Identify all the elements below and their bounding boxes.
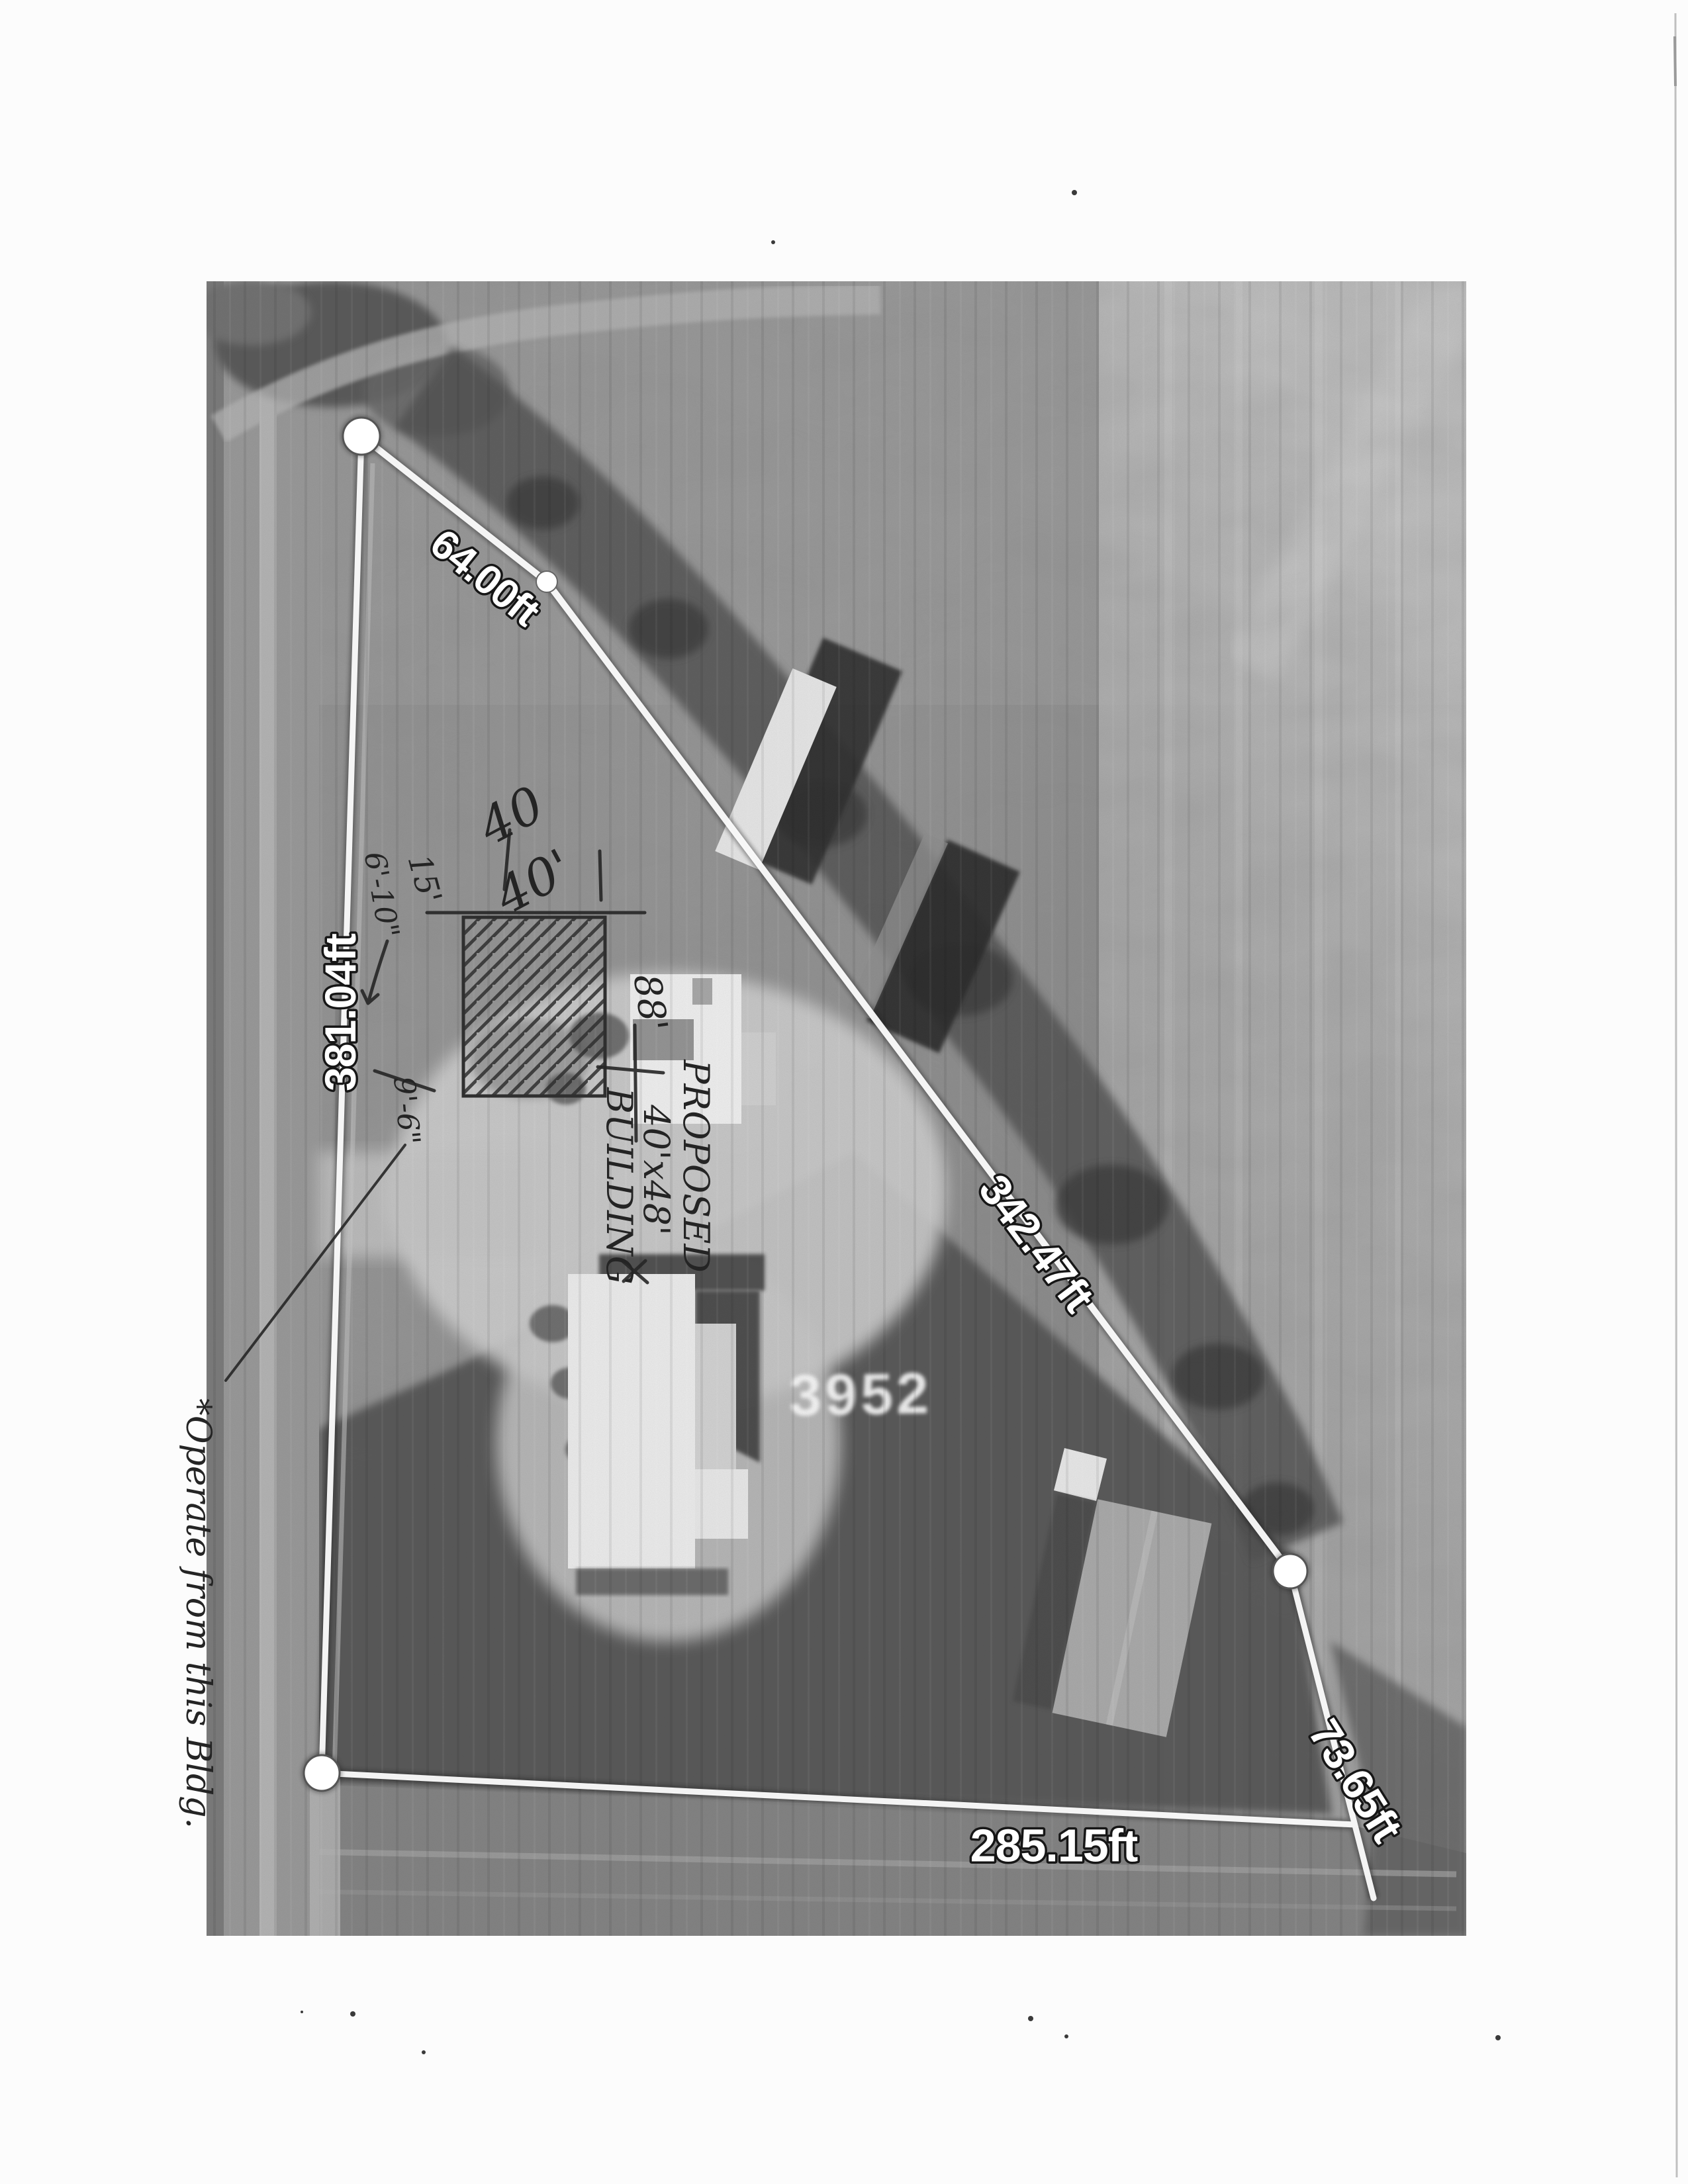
scan-edge-line xyxy=(1675,13,1677,2177)
label-south: 285.15ft xyxy=(970,1820,1138,1872)
hand-proposed-line2: 40'x48' xyxy=(635,1104,677,1236)
scan-edge-mark xyxy=(1675,36,1675,86)
scanned-page: 3952 64.00ft 381.04ft 342.47ft 73.65ft 2… xyxy=(0,0,1688,2184)
vertex-northwest xyxy=(343,418,380,455)
hand-setback-lower: 9'-6" xyxy=(387,1075,426,1146)
aerial-photo: 3952 xyxy=(192,279,1466,1936)
hand-proposed-line1: PROPOSED xyxy=(675,1059,717,1273)
vertex-east xyxy=(1273,1554,1307,1588)
proposed-building-hatch xyxy=(463,917,605,1096)
site-plan-svg: 3952 64.00ft 381.04ft 342.47ft 73.65ft 2… xyxy=(0,0,1688,2184)
hand-side-dim: 88' xyxy=(625,972,675,1034)
hand-proposed-line3: BUILDING xyxy=(598,1087,640,1284)
vertex-north xyxy=(536,571,557,592)
label-west: 381.04ft xyxy=(316,933,365,1091)
hand-margin-note: *Operate from this Bldg. xyxy=(178,1398,218,1829)
vertex-southwest xyxy=(304,1755,340,1791)
